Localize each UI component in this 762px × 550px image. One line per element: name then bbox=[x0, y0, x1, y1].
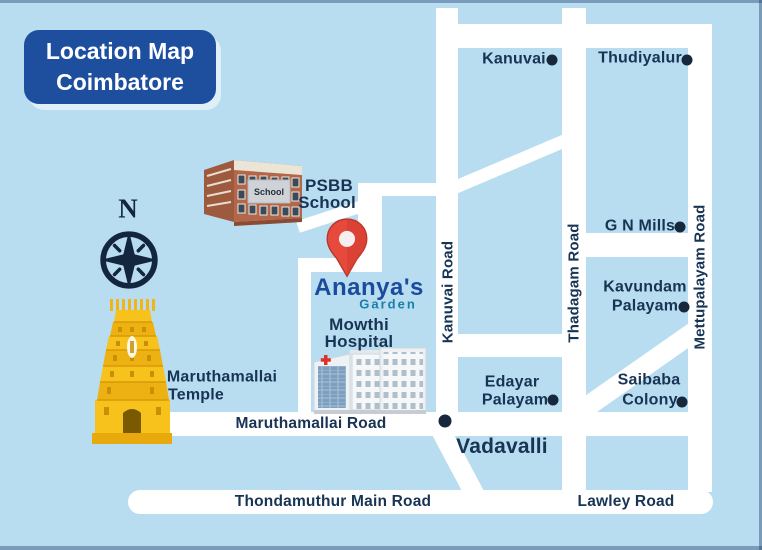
road-edayar-connector bbox=[436, 334, 586, 357]
map-title: Location Map Coimbatore bbox=[24, 30, 216, 104]
map-title-line2: Coimbatore bbox=[56, 67, 184, 98]
label-road-kanuvai: Kanuvai Road bbox=[440, 241, 457, 343]
label-saibaba-line2: Colony bbox=[622, 393, 677, 410]
road-gnmills bbox=[562, 233, 712, 257]
hospital-building-icon bbox=[310, 346, 430, 416]
dot-edayar bbox=[548, 395, 559, 406]
dot-thudiyalur bbox=[682, 55, 693, 66]
label-psbb-line2: School bbox=[298, 194, 356, 212]
label-road-mettupalayam: Mettupalayam Road bbox=[692, 204, 709, 349]
label-kavundam-line2: Palayam bbox=[612, 299, 678, 316]
compass-north-label: N bbox=[118, 194, 138, 225]
label-edayar-line2: Palayam bbox=[482, 393, 548, 410]
label-road-thadagam: Thadagam Road bbox=[566, 223, 583, 342]
label-kanuvai: Kanuvai bbox=[482, 52, 546, 69]
label-road-lawley: Lawley Road bbox=[578, 494, 675, 510]
label-vadavalli: Vadavalli bbox=[456, 436, 548, 458]
school-building-icon: School bbox=[196, 150, 310, 230]
compass-rose-icon bbox=[98, 229, 160, 291]
road-lane-diagonal bbox=[447, 134, 568, 195]
label-thudiyalur: Thudiyalur bbox=[598, 51, 682, 68]
road-top-connector bbox=[436, 24, 712, 48]
location-map: Location Map Coimbatore N School bbox=[0, 0, 762, 550]
label-saibaba-line1: Saibaba bbox=[618, 373, 681, 390]
dot-gnmills bbox=[675, 222, 686, 233]
map-title-line1: Location Map bbox=[46, 36, 194, 67]
label-mowthi-line2: Hospital bbox=[325, 333, 394, 351]
label-kavundam-line1: Kavundam bbox=[603, 280, 686, 297]
label-road-maruthamallai: Maruthamallai Road bbox=[236, 416, 387, 432]
dot-vadavalli bbox=[439, 415, 452, 428]
label-gnmills: G N Mills bbox=[605, 219, 675, 236]
ananyas-logo-sub: Garden bbox=[359, 297, 417, 312]
label-temple-line1: Maruthamallai bbox=[167, 370, 277, 387]
dot-kanuvai bbox=[547, 55, 558, 66]
label-edayar-line1: Edayar bbox=[485, 375, 540, 392]
road-kanuvai bbox=[436, 8, 458, 434]
temple-icon bbox=[92, 297, 172, 449]
school-sign-text: School bbox=[254, 187, 284, 197]
dot-saibaba bbox=[677, 397, 688, 408]
label-temple-line2: Temple bbox=[168, 388, 224, 405]
location-pin-icon bbox=[325, 218, 369, 278]
label-road-thondamuthur: Thondamuthur Main Road bbox=[235, 494, 431, 510]
dot-kavundam bbox=[679, 302, 690, 313]
